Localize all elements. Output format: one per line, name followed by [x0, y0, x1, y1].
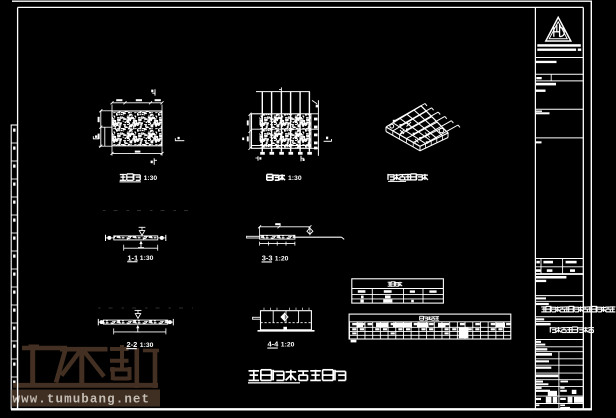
svg-text:1:30: 1:30: [288, 175, 302, 182]
svg-text:1:20: 1:20: [275, 255, 289, 262]
svg-text:1-1: 1-1: [127, 253, 138, 262]
svg-text:1:30: 1:30: [144, 175, 158, 182]
svg-text:1:20: 1:20: [281, 342, 295, 349]
svg-text:www.tumubang.net: www.tumubang.net: [13, 393, 151, 407]
svg-text:1:30: 1:30: [140, 342, 154, 349]
svg-text:3-3: 3-3: [262, 254, 273, 263]
svg-text:2-2: 2-2: [127, 340, 138, 349]
svg-text:4-4: 4-4: [268, 340, 280, 349]
svg-text:1:30: 1:30: [140, 255, 154, 262]
